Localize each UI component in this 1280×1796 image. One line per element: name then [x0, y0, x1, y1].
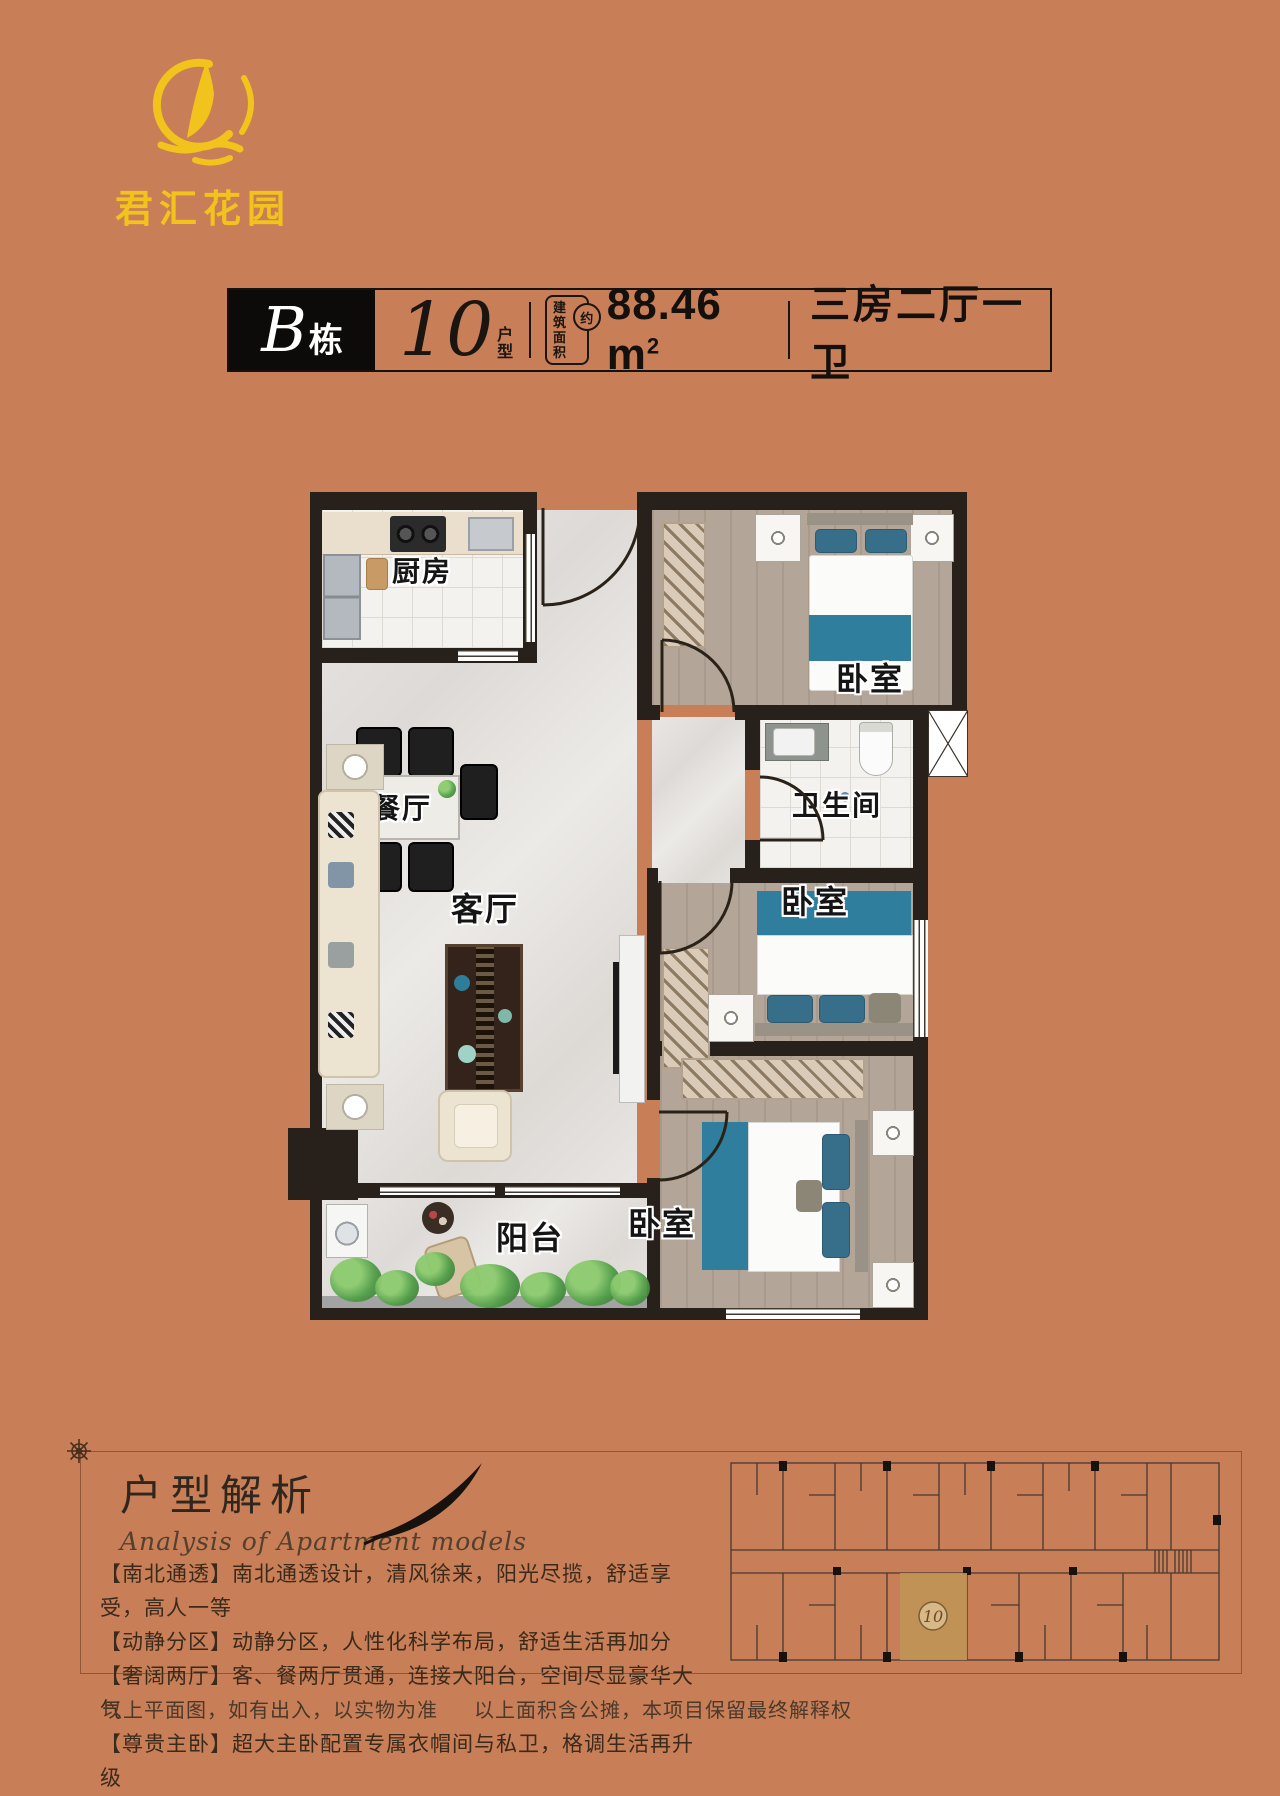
- unit-info: 10 户 型 建筑 面积 约 88.46 m2 三房二厅一卫: [375, 290, 1050, 370]
- brand-name: 君汇花园: [88, 178, 318, 233]
- quill-feather-icon: [360, 1455, 490, 1545]
- entry-door-arc: [543, 508, 640, 605]
- area-badge: 建筑 面积 约: [545, 295, 589, 365]
- footer-disclaimer-left: 以上平面图，如有出入，以实物为准: [102, 1694, 438, 1723]
- bedroom3-label: 卧室: [628, 1199, 696, 1245]
- bedroom1-door-arc: [662, 640, 734, 712]
- bullet-item: 【动静分区】动静分区，人性化科学布局，舒适生活再加分: [100, 1626, 700, 1660]
- brand-logo: 君汇花园: [88, 48, 318, 233]
- divider: [529, 302, 531, 358]
- bullet-item: 【南北通透】南北通透设计，清风徐来，阳光尽揽，舒适享受，高人一等: [100, 1558, 700, 1626]
- analysis-bullets: 【南北通透】南北通透设计，清风徐来，阳光尽揽，舒适享受，高人一等 【动静分区】动…: [100, 1558, 700, 1796]
- building-letter: B: [261, 299, 307, 361]
- building-badge: B 栋: [229, 290, 375, 370]
- bedroom3-door-arc: [659, 1112, 727, 1180]
- sailboat-logo-icon: [143, 48, 263, 170]
- brochure-page: { "colors": { "background": "#c87e57", "…: [0, 0, 1280, 1792]
- floor-plan: 厨房 餐厅 客厅 卧室 卫生间: [310, 492, 967, 1320]
- divider: [788, 301, 790, 359]
- building-suffix: 栋: [309, 313, 343, 362]
- ship-wheel-icon: [66, 1438, 92, 1464]
- bathroom-door-arc: [760, 777, 823, 840]
- layout-text: 三房二厅一卫: [810, 272, 1036, 388]
- bedroom2-door-arc: [660, 881, 732, 953]
- ac-cross-lines: [928, 710, 967, 777]
- door-swing-overlay: [310, 492, 967, 1320]
- building-key-plan: 10: [723, 1455, 1227, 1690]
- footer-disclaimer: 以上平面图，如有出入，以实物为准 以上面积含公摊，本项目保留最终解释权: [102, 1694, 852, 1723]
- unit-number: 10: [399, 293, 493, 367]
- unit-suffix: 户 型: [497, 327, 513, 361]
- area-value: 88.46 m2: [607, 280, 766, 380]
- highlighted-unit-number: 10: [923, 1607, 943, 1626]
- area-approx-circle: 约: [573, 303, 601, 331]
- unit-title-bar: B 栋 10 户 型 建筑 面积 约 88.46 m2 三房二厅一卫: [227, 288, 1052, 372]
- bullet-item: 【尊贵主卧】超大主卧配置专属衣帽间与私卫，格调生活再升级: [100, 1728, 700, 1796]
- footer-disclaimer-right: 以上面积含公摊，本项目保留最终解释权: [474, 1694, 852, 1723]
